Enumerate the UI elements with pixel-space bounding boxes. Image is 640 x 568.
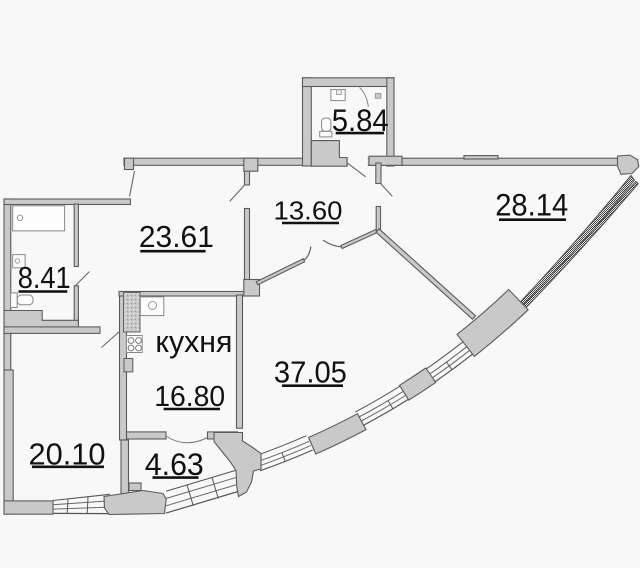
svg-text:37.05: 37.05 bbox=[274, 355, 347, 389]
svg-text:23.61: 23.61 bbox=[139, 220, 214, 254]
svg-text:8.41: 8.41 bbox=[18, 261, 71, 295]
svg-text:28.14: 28.14 bbox=[495, 186, 568, 222]
svg-text:13.60: 13.60 bbox=[274, 195, 343, 225]
svg-text:кухня: кухня bbox=[155, 325, 232, 359]
